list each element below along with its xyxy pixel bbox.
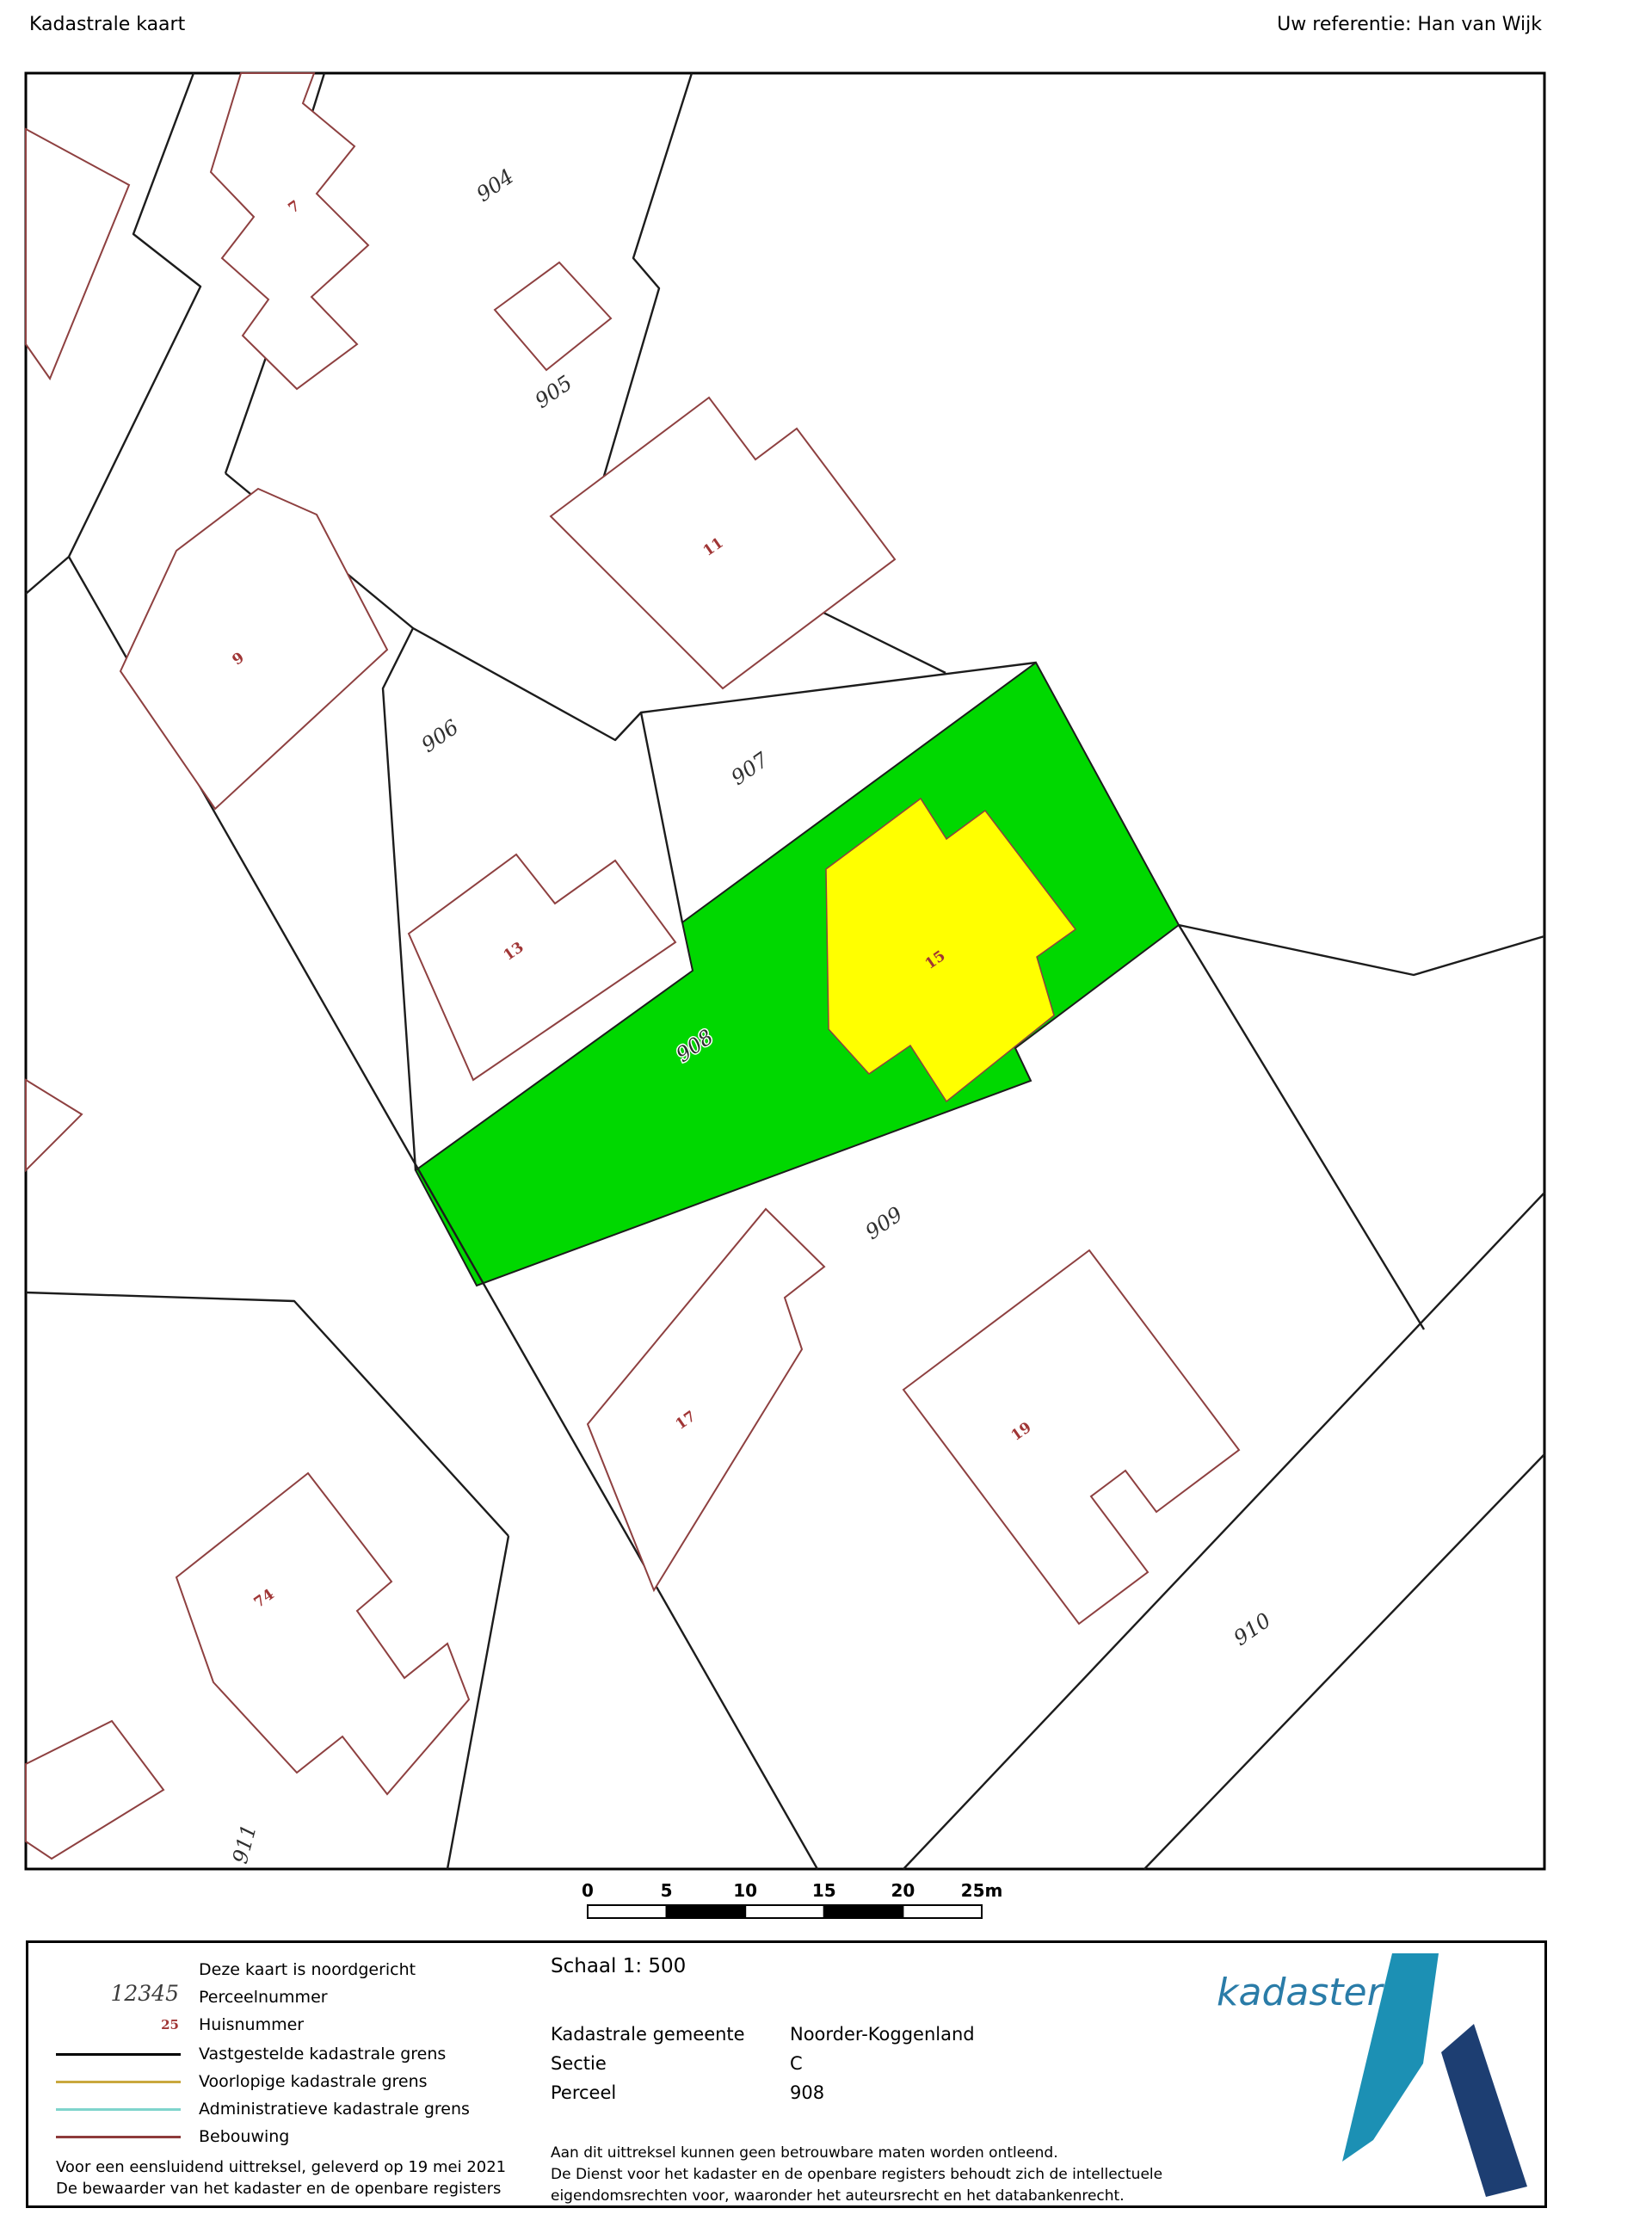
disclaimer-line1: Aan dit uittreksel kunnen geen betrouwba… [551, 2144, 1058, 2162]
info-value-gemeente: Noorder-Koggenland [790, 2024, 975, 2045]
legend-house-number-sample: 25 [80, 2017, 179, 2033]
legend-north-note: Deze kaart is noordgericht [199, 1960, 416, 1979]
scalebar-label-15: 15 [812, 1880, 836, 1901]
scalebar-segment-4 [903, 1905, 982, 1918]
info-label-gemeente: Kadastrale gemeente [551, 2024, 745, 2045]
legend-label-provisional-boundary: Voorlopige kadastrale grens [199, 2072, 428, 2091]
disclaimer-line2: De Dienst voor het kadaster en de openba… [551, 2166, 1162, 2183]
legend-line-bebouwing [56, 2136, 181, 2138]
scalebar-segment-1 [667, 1905, 746, 1918]
scalebar-label-10: 10 [733, 1880, 757, 1901]
map-scale-bar: 0510152025m [0, 0, 1652, 2233]
legend-parcel-number-label: Perceelnummer [199, 1988, 328, 2007]
legend-line-administrative-boundary [56, 2108, 181, 2111]
info-label-sectie: Sectie [551, 2053, 607, 2074]
scalebar-segment-0 [588, 1905, 667, 1918]
legend-parcel-number-sample: 12345 [80, 1981, 179, 2006]
info-value-sectie: C [790, 2053, 803, 2074]
disclaimer-line3: eigendomsrechten voor, waaronder het aut… [551, 2187, 1125, 2205]
scale-text: Schaal 1: 500 [551, 1955, 686, 1977]
legend-line-provisional-boundary [56, 2081, 181, 2083]
scalebar-label-0: 0 [582, 1880, 594, 1901]
scalebar-label-25m: 25m [961, 1880, 1003, 1901]
legend-footer-line1: Voor een eensluidend uittreksel, gelever… [56, 2158, 506, 2176]
info-value-perceel: 908 [790, 2082, 824, 2103]
legend-footer-line2: De bewaarder van het kadaster en de open… [56, 2180, 501, 2198]
kadaster-logo: kadaster [1200, 1946, 1540, 2203]
scalebar-segment-2 [745, 1905, 824, 1918]
kadaster-logo-text: kadaster [1217, 1971, 1383, 2014]
scalebar-segment-3 [824, 1905, 903, 1918]
info-label-perceel: Perceel [551, 2082, 616, 2103]
scalebar-label-20: 20 [891, 1880, 915, 1901]
legend-label-bebouwing: Bebouwing [199, 2127, 289, 2146]
legend-label-administrative-boundary: Administratieve kadastrale grens [199, 2100, 470, 2119]
legend-house-number-label: Huisnummer [199, 2015, 304, 2034]
scalebar-label-5: 5 [661, 1880, 673, 1901]
legend-line-definitive-boundary [56, 2053, 181, 2056]
legend-label-definitive-boundary: Vastgestelde kadastrale grens [199, 2045, 446, 2063]
cadastral-extract-page: Kadastrale kaart Uw referentie: Han van … [0, 0, 1652, 2233]
